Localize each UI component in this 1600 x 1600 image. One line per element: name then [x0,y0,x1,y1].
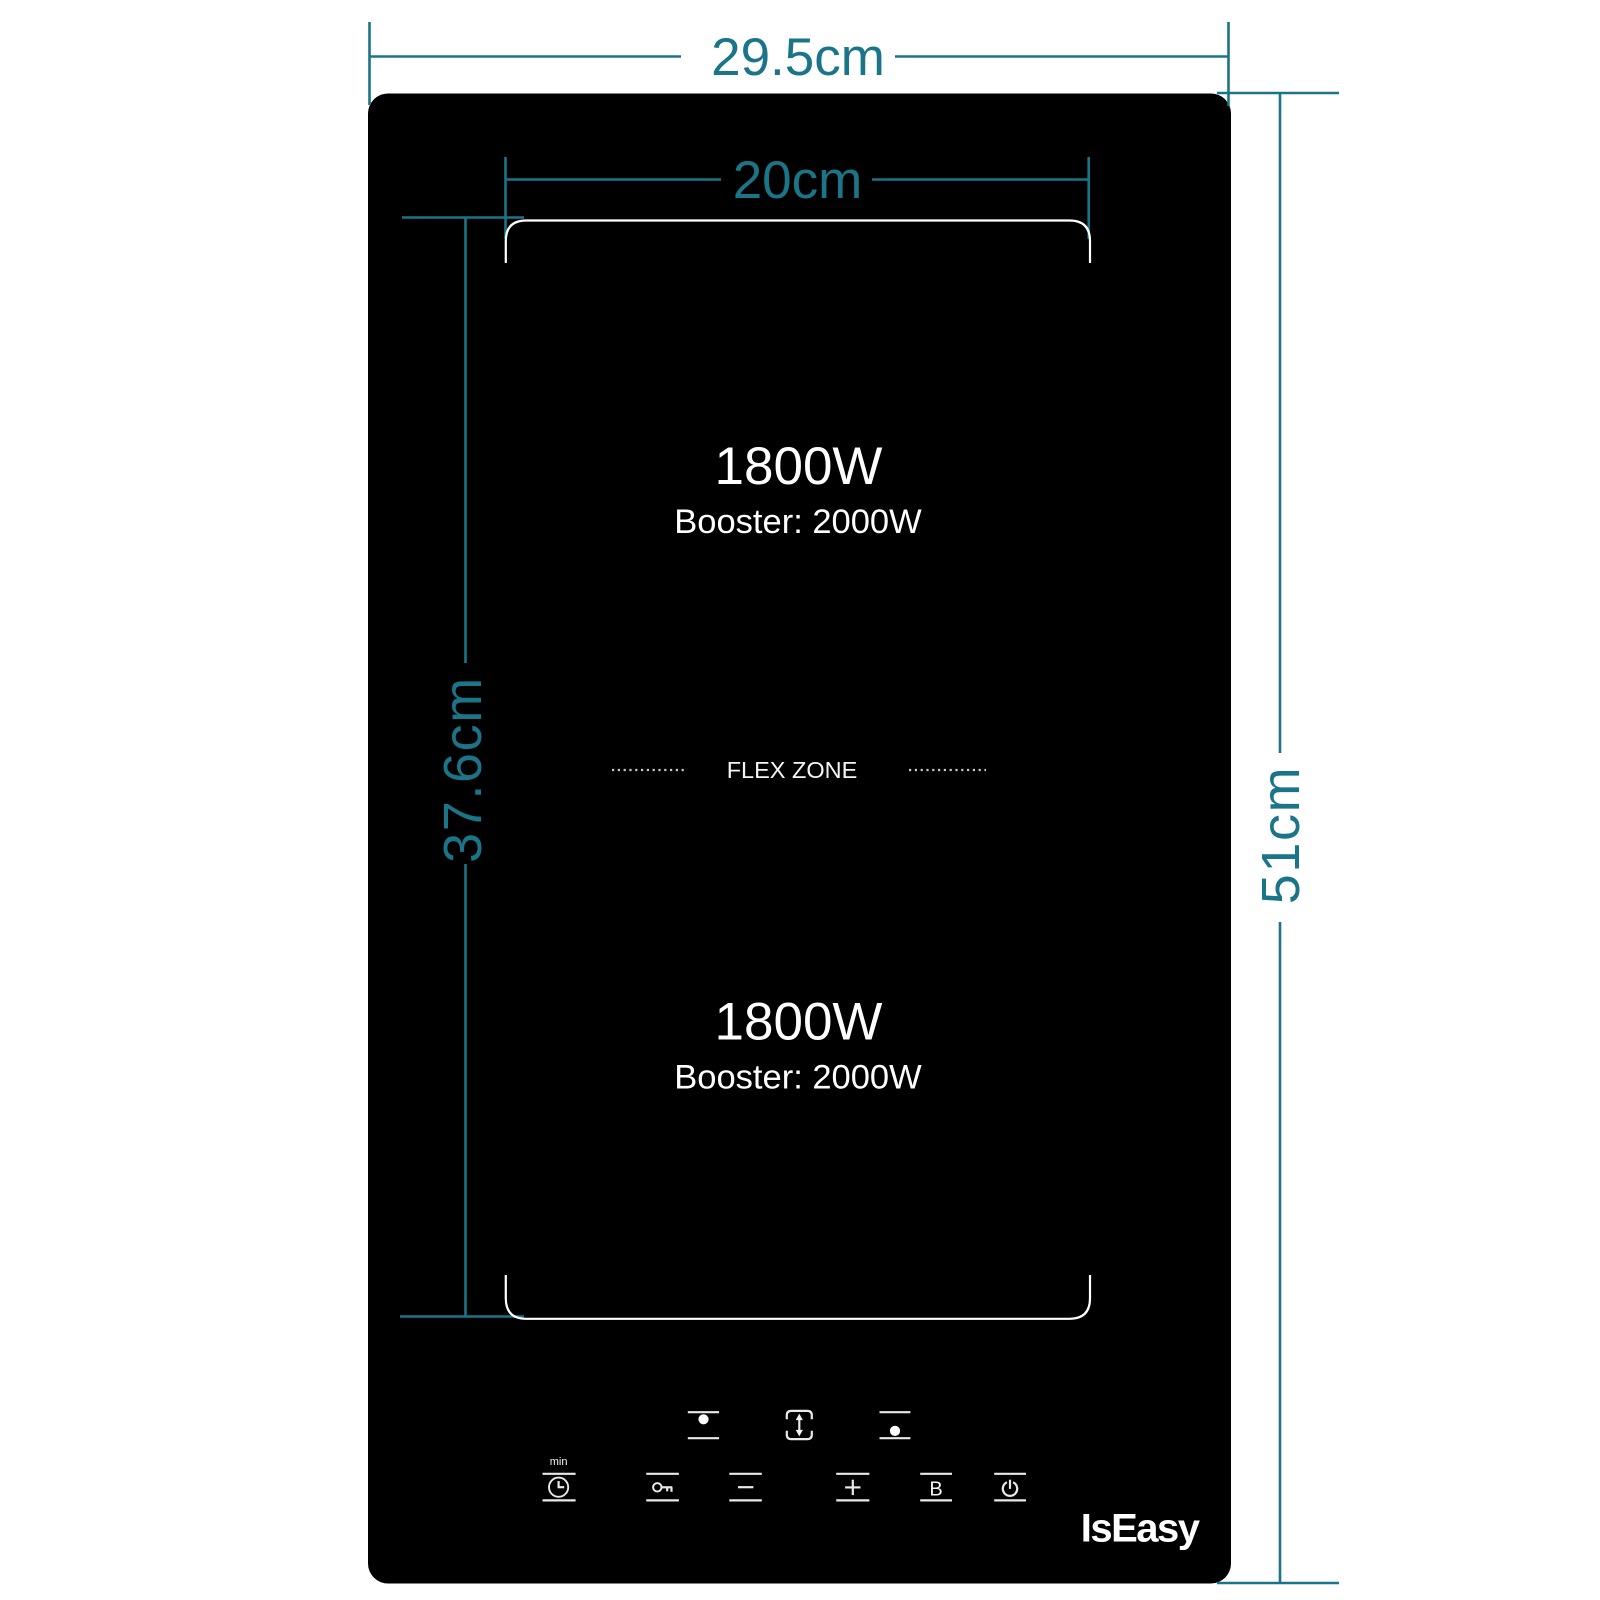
svg-text:1800W: 1800W [715,437,883,496]
svg-text:Booster: 2000W: Booster: 2000W [674,503,922,541]
svg-text:20cm: 20cm [733,151,863,210]
svg-text:51cm: 51cm [1251,766,1311,904]
svg-text:37.6cm: 37.6cm [433,676,493,863]
svg-text:1800W: 1800W [715,993,883,1052]
svg-text:min: min [550,1456,568,1468]
svg-text:IsEasy: IsEasy [1081,1507,1201,1551]
svg-text:29.5cm: 29.5cm [711,28,885,87]
svg-text:B: B [929,1479,942,1501]
svg-text:Booster: 2000W: Booster: 2000W [674,1059,922,1097]
svg-text:FLEX ZONE: FLEX ZONE [727,757,858,783]
